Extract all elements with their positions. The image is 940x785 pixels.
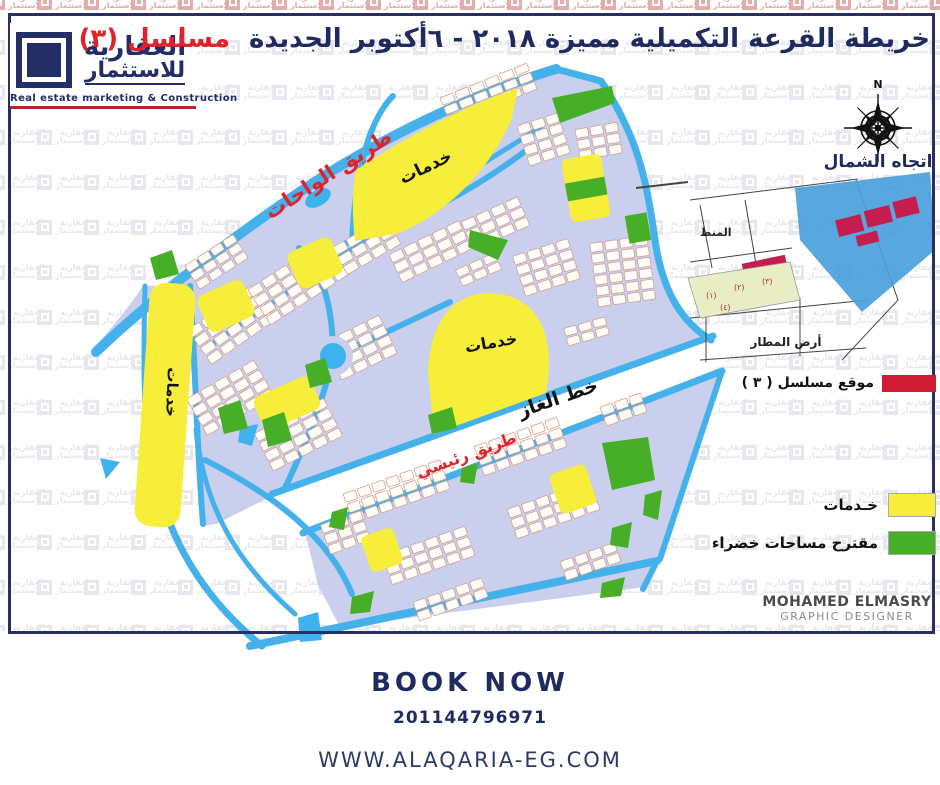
legend-services-label: خـدمات <box>823 496 878 514</box>
airport-land-label: أرض المطار <box>749 334 821 349</box>
district-label: المنط <box>700 226 732 239</box>
designer-credit: MOHAMED ELMASRY GRAPHIC DESIGNER <box>762 594 932 623</box>
logo-square-icon <box>16 32 72 88</box>
legend-green-row: مقترح مساحات خضراء <box>726 530 936 556</box>
svg-text:(٣): (٣) <box>762 277 773 286</box>
legend-services-swatch <box>888 493 936 517</box>
designer-name: MOHAMED ELMASRY <box>762 594 932 610</box>
services-label: خدمات <box>162 367 182 417</box>
compass-north-letter: N <box>873 78 882 91</box>
website-url: WWW.ALAQARIA-EG.COM <box>0 748 940 772</box>
legend-green-label: مقترح مساحات خضراء <box>712 534 878 552</box>
brand-tagline: Real estate marketing & Construction <box>10 92 196 106</box>
book-now-text: BOOK NOW <box>0 668 940 698</box>
svg-text:(٢): (٢) <box>734 283 745 292</box>
phone-number: 201144796971 <box>0 708 940 728</box>
svg-text:(١): (١) <box>706 291 717 300</box>
serial-location-swatch <box>882 375 936 392</box>
poster-title: خريطة القرعة التكميلية مميزة ٢٠١٨ - ٦أكت… <box>198 18 930 60</box>
north-direction-label: اتجاه الشمال <box>818 152 938 172</box>
legend-services-row: خـدمات <box>736 492 936 518</box>
brand-name-line2: للاستثمار <box>85 60 185 85</box>
designer-role: GRAPHIC DESIGNER <box>762 610 932 623</box>
serial-location-label: موقع مسلسل ( ٣ ) <box>742 375 874 391</box>
svg-text:(٤): (٤) <box>720 303 731 312</box>
title-main: خريطة القرعة التكميلية مميزة ٢٠١٨ - ٦أكت… <box>249 24 930 54</box>
legend-green-swatch <box>888 531 936 555</box>
title-serial: مسلسل (٣) <box>78 24 230 54</box>
serial-location-row: موقع مسلسل ( ٣ ) <box>740 372 936 394</box>
